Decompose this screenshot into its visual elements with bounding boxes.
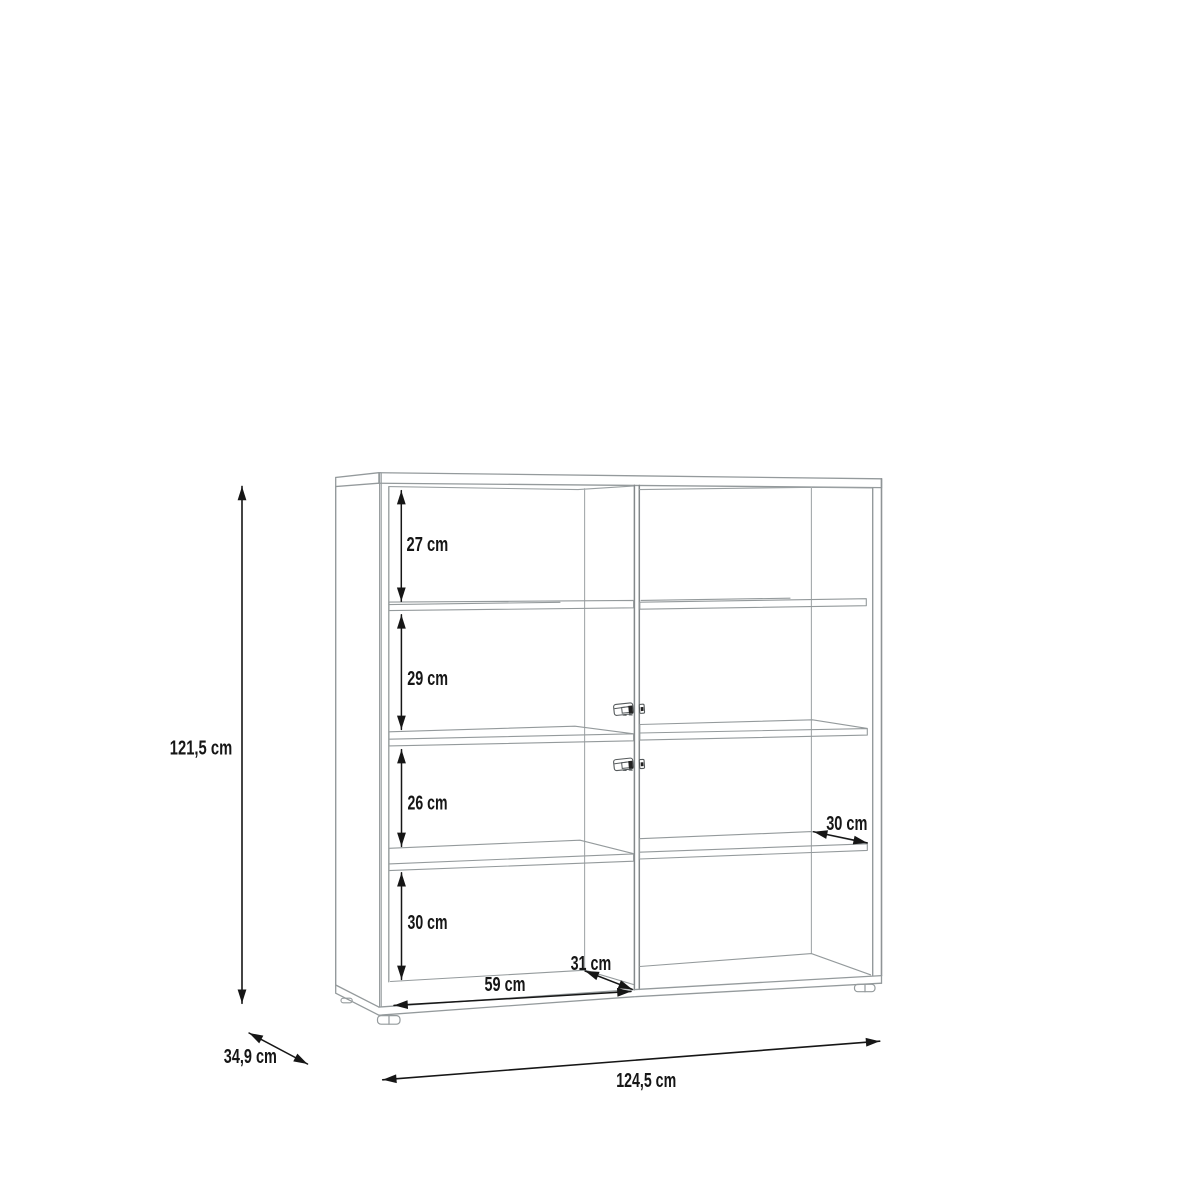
svg-text:34,9 cm: 34,9 cm (224, 1046, 277, 1068)
svg-text:124,5 cm: 124,5 cm (616, 1070, 676, 1092)
svg-text:27 cm: 27 cm (407, 534, 449, 556)
svg-text:30 cm: 30 cm (408, 912, 448, 934)
svg-text:29 cm: 29 cm (407, 668, 448, 690)
svg-text:26 cm: 26 cm (408, 793, 448, 815)
svg-text:59 cm: 59 cm (485, 974, 526, 996)
svg-text:31 cm: 31 cm (571, 953, 612, 975)
svg-text:121,5 cm: 121,5 cm (170, 738, 232, 760)
svg-text:30 cm: 30 cm (826, 813, 867, 835)
